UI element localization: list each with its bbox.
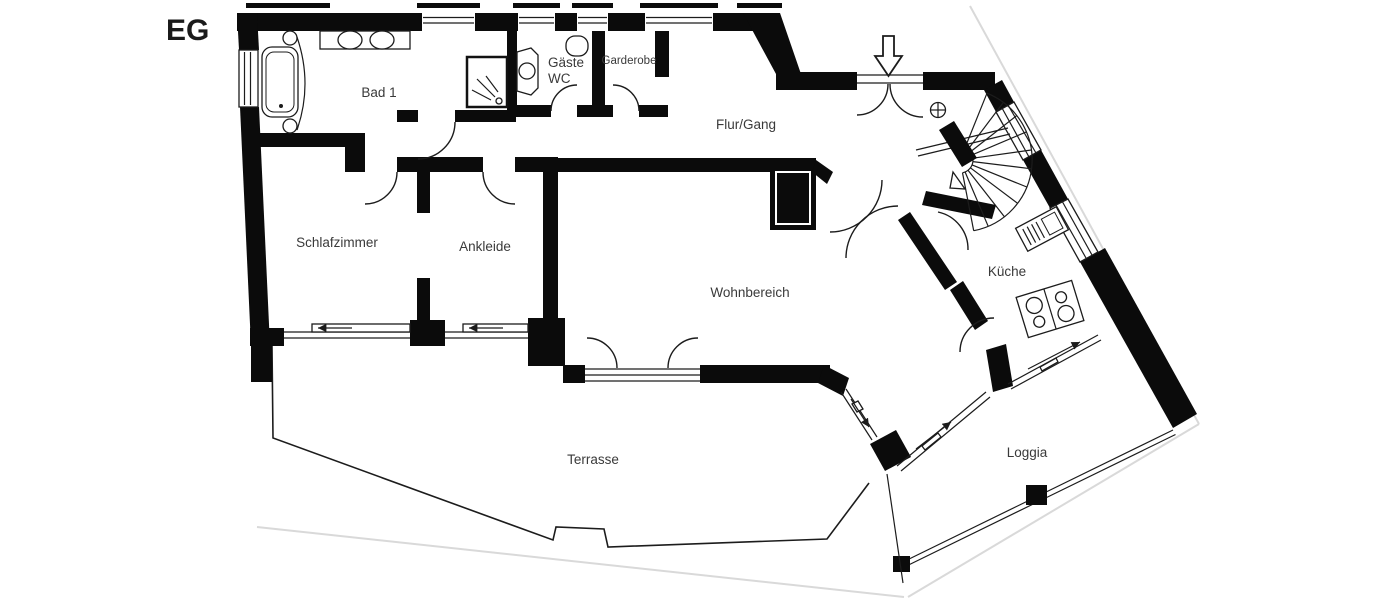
kueche-door-arc-upper xyxy=(938,212,968,250)
washbasin xyxy=(370,31,394,49)
cooktop xyxy=(1016,280,1084,337)
oven xyxy=(1016,207,1069,252)
wc-door-arc xyxy=(551,85,577,111)
interior-walls xyxy=(257,31,996,330)
room-label-kueche: Küche xyxy=(988,264,1026,279)
entrance-arrow-icon xyxy=(875,36,902,76)
kueche-door-arc-lower xyxy=(960,318,994,352)
schlafzimmer-door-arc xyxy=(365,172,397,204)
french-door-arc-right xyxy=(668,338,698,368)
room-label-ankleide: Ankleide xyxy=(459,239,511,254)
ankleide-door-arc xyxy=(483,172,515,204)
room-label-loggia: Loggia xyxy=(1007,445,1048,460)
floor-plan-page: EG Bad 1 Gäste WC Garderobe Flur/Gang Sc… xyxy=(0,0,1400,600)
entrance-door-arc-left xyxy=(857,84,888,115)
room-label-schlafzimmer: Schlafzimmer xyxy=(296,235,378,250)
room-label-wohnbereich: Wohnbereich xyxy=(710,285,789,300)
room-label-gaeste-wc-line2: WC xyxy=(548,71,571,86)
washbasin xyxy=(338,31,362,49)
floor-title: EG xyxy=(166,14,209,47)
vanity-counter xyxy=(320,31,410,49)
room-label-flur: Flur/Gang xyxy=(716,117,776,132)
room-label-bad1: Bad 1 xyxy=(361,85,396,100)
room-label-gaeste-wc-line1: Gäste xyxy=(548,55,584,70)
room-label-terrasse: Terrasse xyxy=(567,452,619,467)
bathroom-fixtures xyxy=(262,31,588,133)
wohnbereich-door-arc-2 xyxy=(846,206,898,258)
floor-plan-canvas: EG Bad 1 Gäste WC Garderobe Flur/Gang Sc… xyxy=(0,0,1400,600)
wohnbereich-door-arc-1 xyxy=(830,180,882,232)
french-door-arc-left xyxy=(587,338,617,368)
bad1-door-arc xyxy=(418,122,455,159)
entrance-door-arc-right xyxy=(890,84,923,117)
room-label-garderobe: Garderobe xyxy=(602,55,657,67)
wc-sink xyxy=(566,36,588,56)
garderobe-door-arc xyxy=(613,85,639,111)
